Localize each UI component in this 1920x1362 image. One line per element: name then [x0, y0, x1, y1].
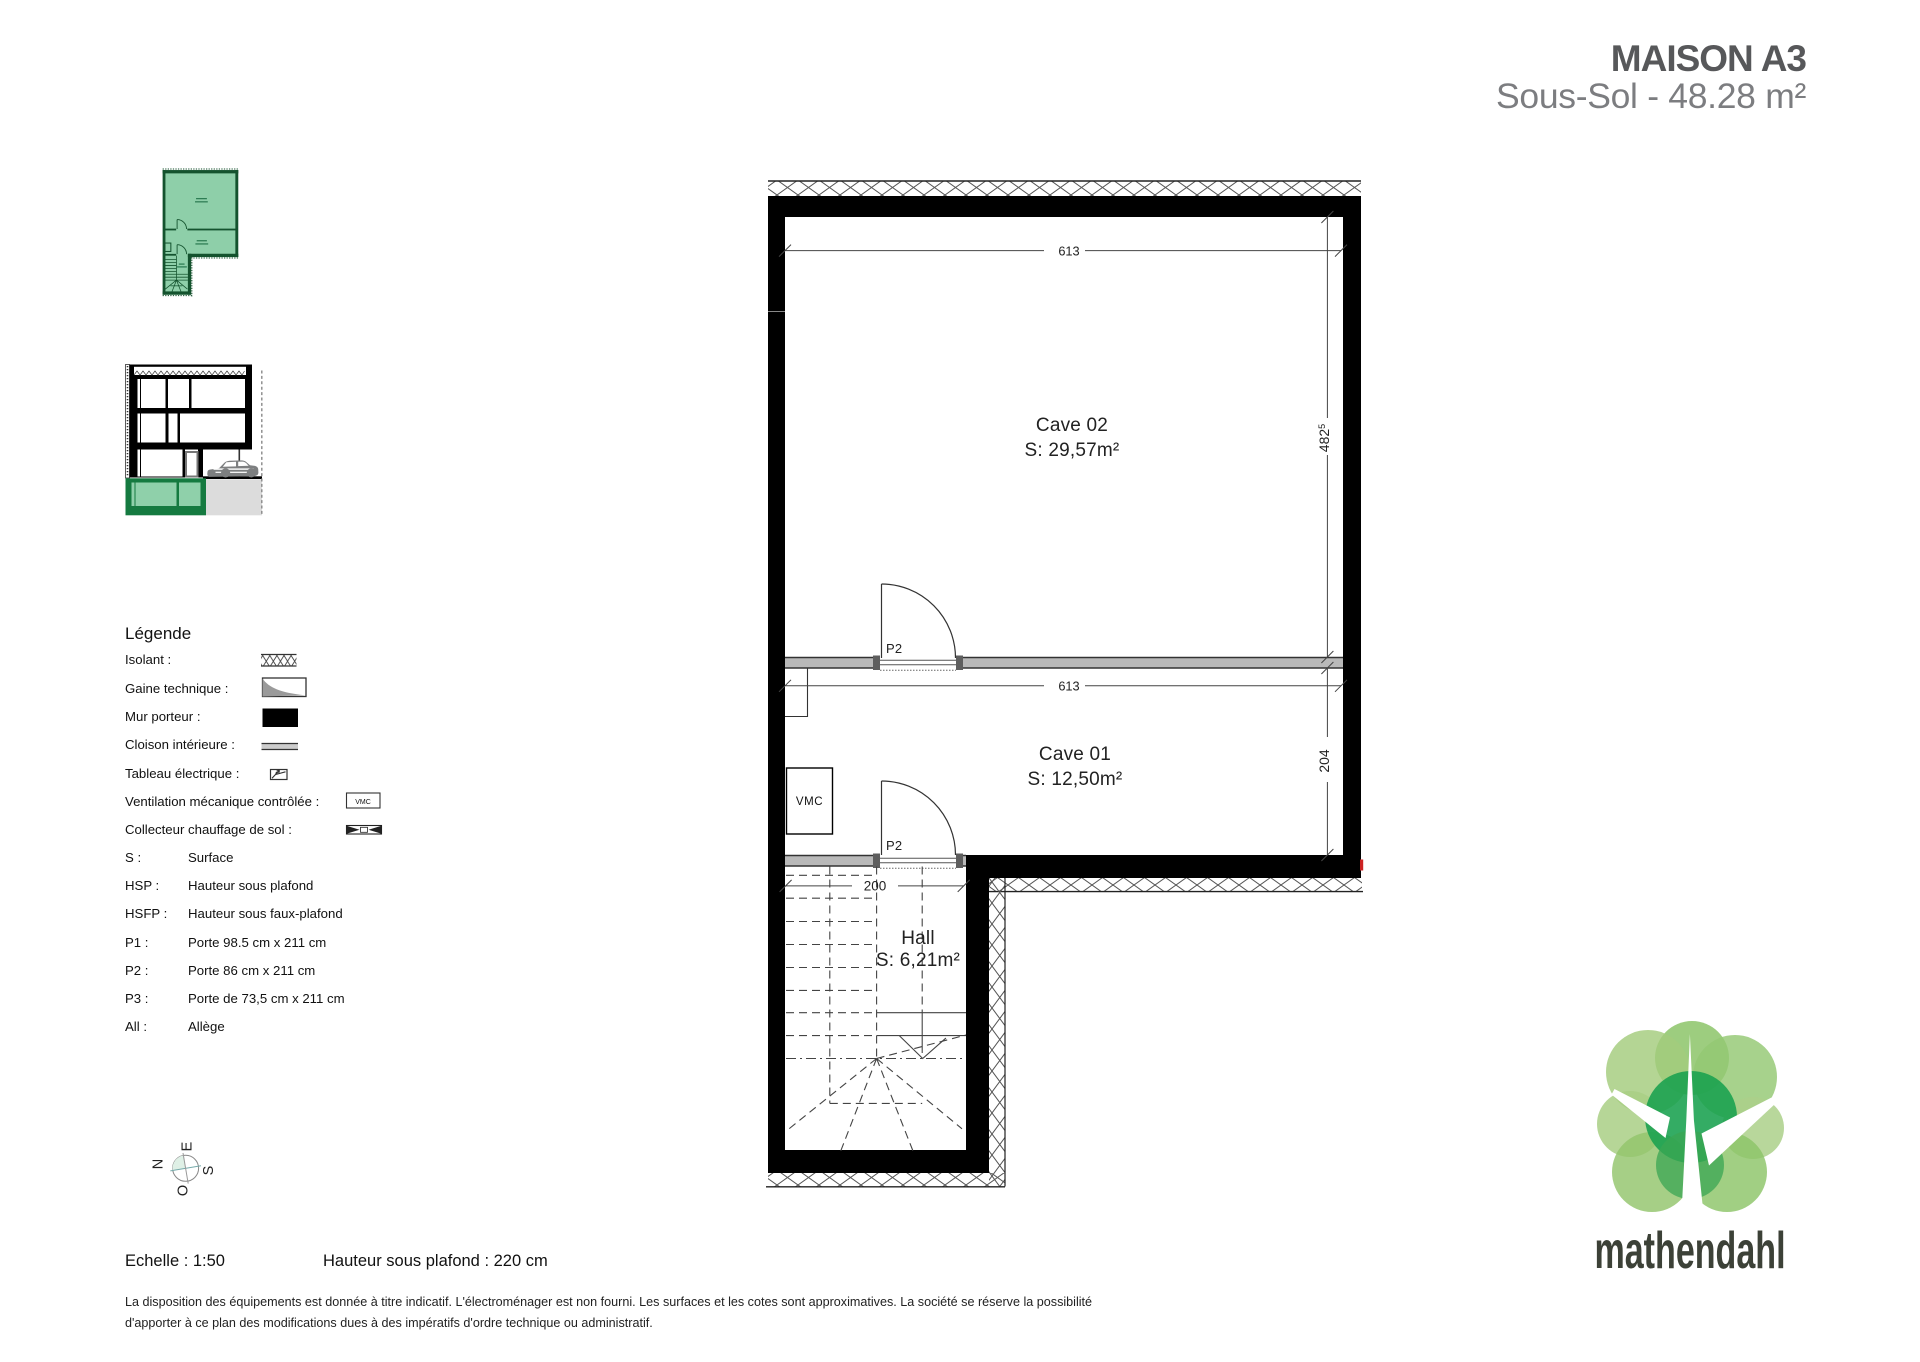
svg-text:Collecteur chauffage de sol :: Collecteur chauffage de sol : [125, 822, 292, 837]
svg-text:Hall: Hall [901, 928, 935, 949]
svg-text:VMC: VMC [355, 799, 371, 806]
svg-text:P3 :: P3 : [125, 991, 148, 1006]
svg-text:mathendahl: mathendahl [1594, 1222, 1785, 1280]
svg-text:HSFP :: HSFP : [125, 906, 167, 921]
svg-text:Allège: Allège [188, 1019, 225, 1034]
svg-text:Hauteur sous plafond : 220 cm: Hauteur sous plafond : 220 cm [323, 1252, 548, 1270]
svg-text:S: 6,21m²: S: 6,21m² [876, 950, 960, 971]
svg-text:Surface: Surface [188, 850, 233, 865]
svg-text:Isolant :: Isolant : [125, 652, 171, 667]
svg-text:Cloison intérieure :: Cloison intérieure : [125, 737, 235, 752]
svg-text:S :: S : [125, 850, 141, 865]
svg-text:VMC: VMC [796, 796, 823, 808]
svg-text:Porte 98.5 cm x 211 cm: Porte 98.5 cm x 211 cm [188, 935, 326, 950]
svg-text:O: O [176, 1185, 192, 1196]
svg-text:Gaine technique :: Gaine technique : [125, 681, 228, 696]
svg-text:Légende: Légende [125, 624, 191, 643]
svg-text:La disposition des équipements: La disposition des équipements est donné… [125, 1295, 1092, 1309]
svg-text:Hauteur sous faux-plafond: Hauteur sous faux-plafond [188, 906, 343, 921]
svg-text:Sous-Sol - 48.28 m²: Sous-Sol - 48.28 m² [1496, 76, 1806, 116]
svg-text:Cave 02: Cave 02 [1036, 415, 1108, 436]
svg-text:S: S [201, 1166, 217, 1176]
svg-text:N: N [151, 1159, 167, 1169]
svg-text:P2 :: P2 : [125, 963, 148, 978]
svg-text:Porte de 73,5 cm x 211 cm: Porte de 73,5 cm x 211 cm [188, 991, 345, 1006]
svg-text:613: 613 [1058, 243, 1079, 258]
svg-text:Tableau électrique :: Tableau électrique : [125, 766, 239, 781]
svg-text:Echelle : 1:50: Echelle : 1:50 [125, 1252, 225, 1270]
svg-text:200: 200 [864, 879, 887, 894]
svg-text:MAISON A3: MAISON A3 [1611, 38, 1807, 79]
svg-text:P2: P2 [886, 641, 902, 656]
svg-text:4825: 4825 [1316, 424, 1332, 452]
svg-text:P1 :: P1 : [125, 935, 148, 950]
svg-text:E: E [180, 1141, 196, 1151]
svg-text:Cave 01: Cave 01 [1039, 744, 1111, 765]
svg-text:S: 29,57m²: S: 29,57m² [1025, 440, 1120, 461]
svg-text:Hauteur sous plafond: Hauteur sous plafond [188, 878, 313, 893]
svg-text:Porte 86 cm x 211 cm: Porte 86 cm x 211 cm [188, 963, 315, 978]
svg-text:613: 613 [1058, 679, 1079, 694]
svg-text:S: 12,50m²: S: 12,50m² [1028, 769, 1123, 790]
svg-text:All :: All : [125, 1019, 147, 1034]
svg-text:Mur porteur :: Mur porteur : [125, 709, 201, 724]
svg-text:Ventilation mécanique contrôlé: Ventilation mécanique contrôlée : [125, 794, 319, 809]
svg-text:204: 204 [1316, 749, 1332, 773]
svg-text:HSP :: HSP : [125, 878, 159, 893]
svg-text:P2: P2 [886, 838, 902, 853]
svg-text:d'apporter à ce plan des modif: d'apporter à ce plan des modifications d… [125, 1316, 653, 1330]
